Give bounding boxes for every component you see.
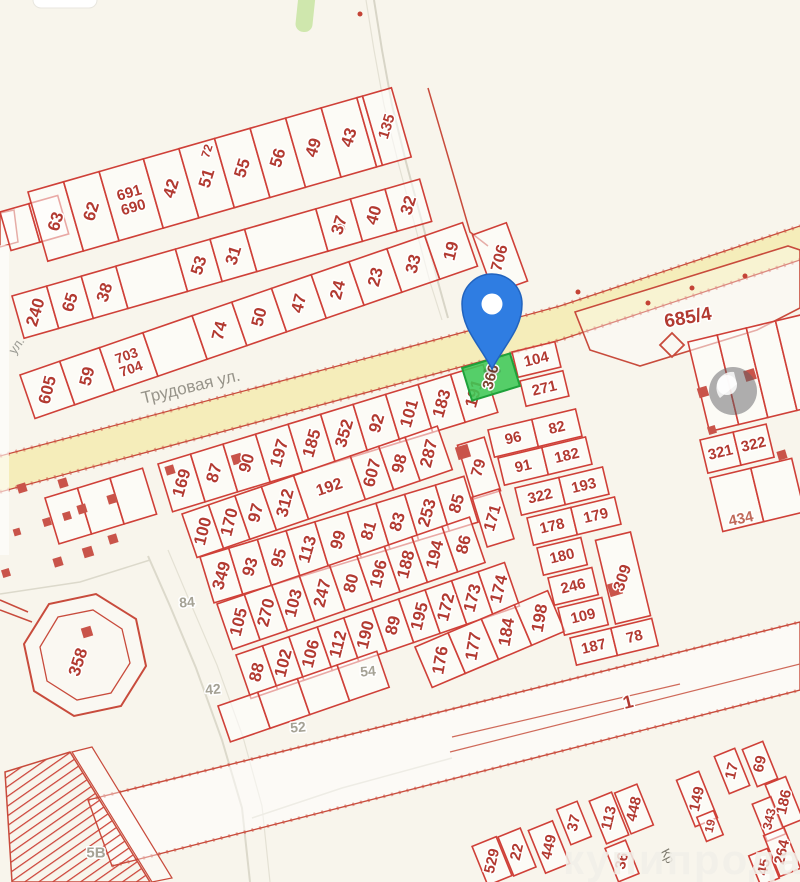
boundary-marker	[646, 301, 651, 306]
map-geometry	[0, 245, 9, 555]
plot-number: 52	[290, 718, 307, 735]
provider-logo-watermark	[709, 367, 757, 415]
map-screenshot: 6362691690425155564943135240653853313740…	[0, 0, 800, 882]
plot-number: 5В	[86, 845, 105, 862]
plot-number: 84	[179, 593, 196, 610]
pin-hole	[482, 294, 503, 315]
plot-number: 42	[205, 680, 222, 697]
map-canvas[interactable]: 6362691690425155564943135240653853313740…	[0, 0, 800, 882]
site-watermark: купипродай	[563, 836, 800, 882]
boundary-marker	[358, 12, 363, 17]
plot-number: 54	[360, 662, 377, 679]
ui-pill[interactable]	[33, 0, 97, 8]
boundary-marker	[743, 274, 748, 279]
boundary-marker	[690, 286, 695, 291]
boundary-marker	[576, 290, 581, 295]
